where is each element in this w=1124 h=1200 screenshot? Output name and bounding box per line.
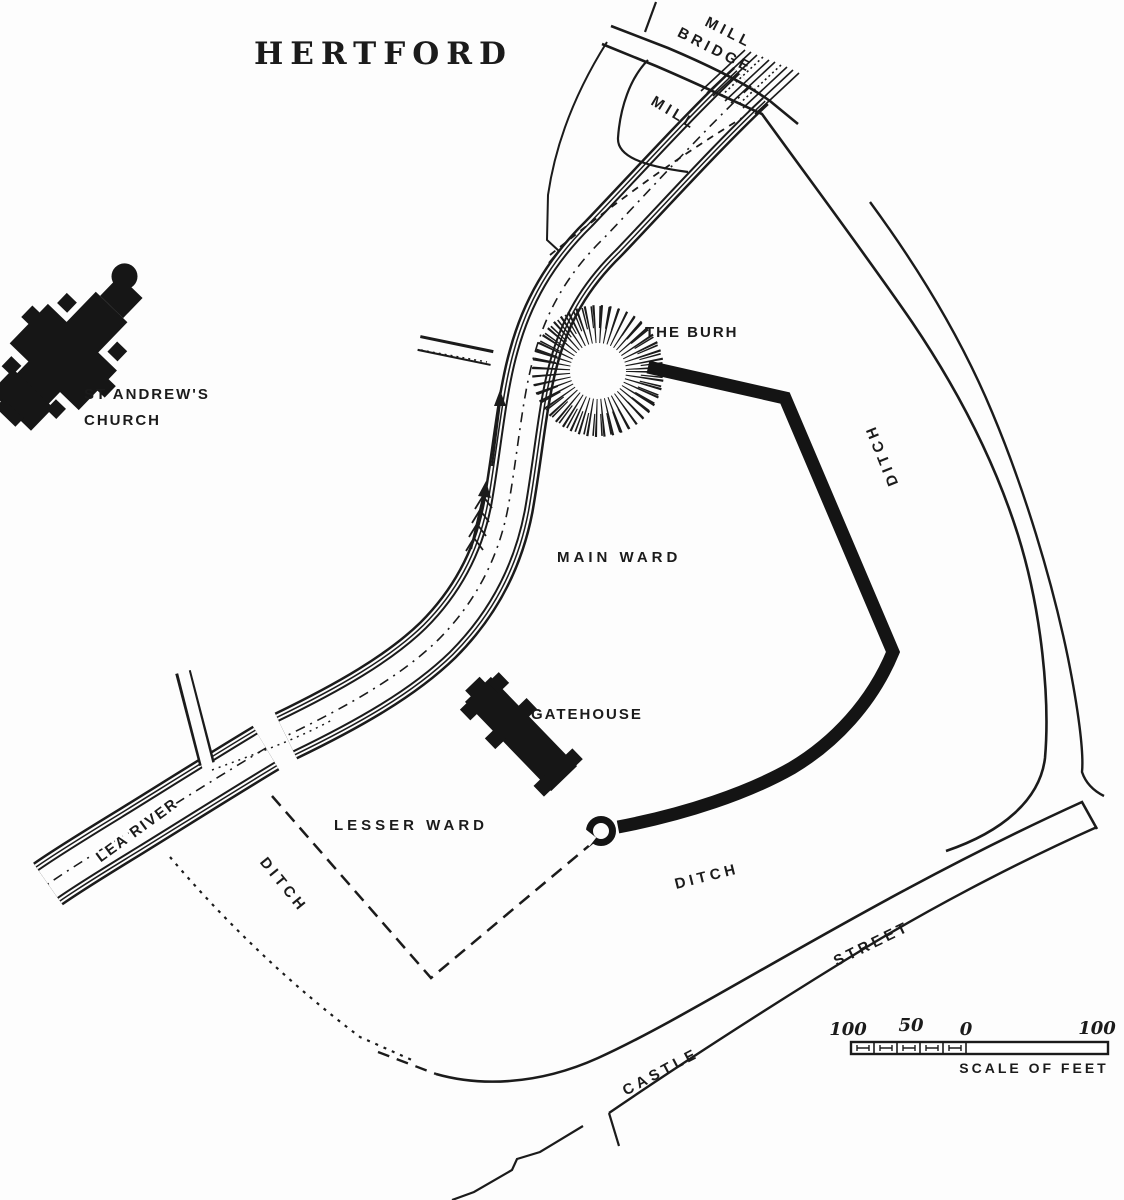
scale-caption: SCALE OF FEET — [959, 1060, 1108, 1076]
gatehouse-label: GATEHOUSE — [531, 706, 643, 723]
scale-100-left: 100 — [829, 1019, 867, 1040]
burh-label: THE BURH — [645, 324, 739, 341]
ditch-south-label: DITCH — [673, 860, 741, 892]
hertford-castle-map: 100 50 0 100 SCALE OF FEET HERTFORD MILL… — [0, 0, 1124, 1200]
branch-road-west-edge — [452, 1126, 583, 1200]
burh-summit — [571, 344, 625, 398]
river-side-lane — [183, 670, 208, 768]
river-upper-reach — [286, 86, 751, 736]
scale-100-right: 100 — [1078, 1018, 1116, 1039]
castle-street-north-edge-dashes — [378, 1052, 436, 1074]
ditch-west-label: DITCH — [256, 854, 311, 916]
scale-50: 50 — [898, 1015, 924, 1036]
ditch-east-label: DITCH — [862, 421, 902, 488]
branch-road-east-edge — [609, 1113, 619, 1146]
road-north-stub — [645, 2, 656, 32]
scale-0: 0 — [960, 1019, 973, 1040]
ditch-lines — [170, 796, 597, 1061]
lea-river-band — [48, 42, 751, 884]
castle-street-label-street: STREET — [831, 918, 913, 970]
map-title: HERTFORD — [254, 36, 513, 72]
main-ward-label: MAIN WARD — [557, 549, 681, 566]
church-label-line2: CHURCH — [84, 412, 161, 429]
church-label-line1: ST ANDREW'S — [84, 386, 210, 403]
gatehouse-building — [452, 664, 585, 799]
mill-bridge-label: MILL BRIDGE — [675, 5, 766, 77]
scale-bar: 100 50 0 100 SCALE OF FEET — [829, 1015, 1116, 1076]
lesser-ward-label: LESSER WARD — [334, 817, 488, 834]
map-canvas: 100 50 0 100 SCALE OF FEET HERTFORD MILL… — [0, 0, 1124, 1200]
northeast-road-east-edge — [870, 202, 1104, 796]
castle-street-north-edge — [436, 802, 1097, 1082]
castle-street-label-castle: CASTLE — [620, 1045, 702, 1099]
wall-end-tower — [578, 820, 612, 847]
castle-wall — [618, 367, 893, 827]
